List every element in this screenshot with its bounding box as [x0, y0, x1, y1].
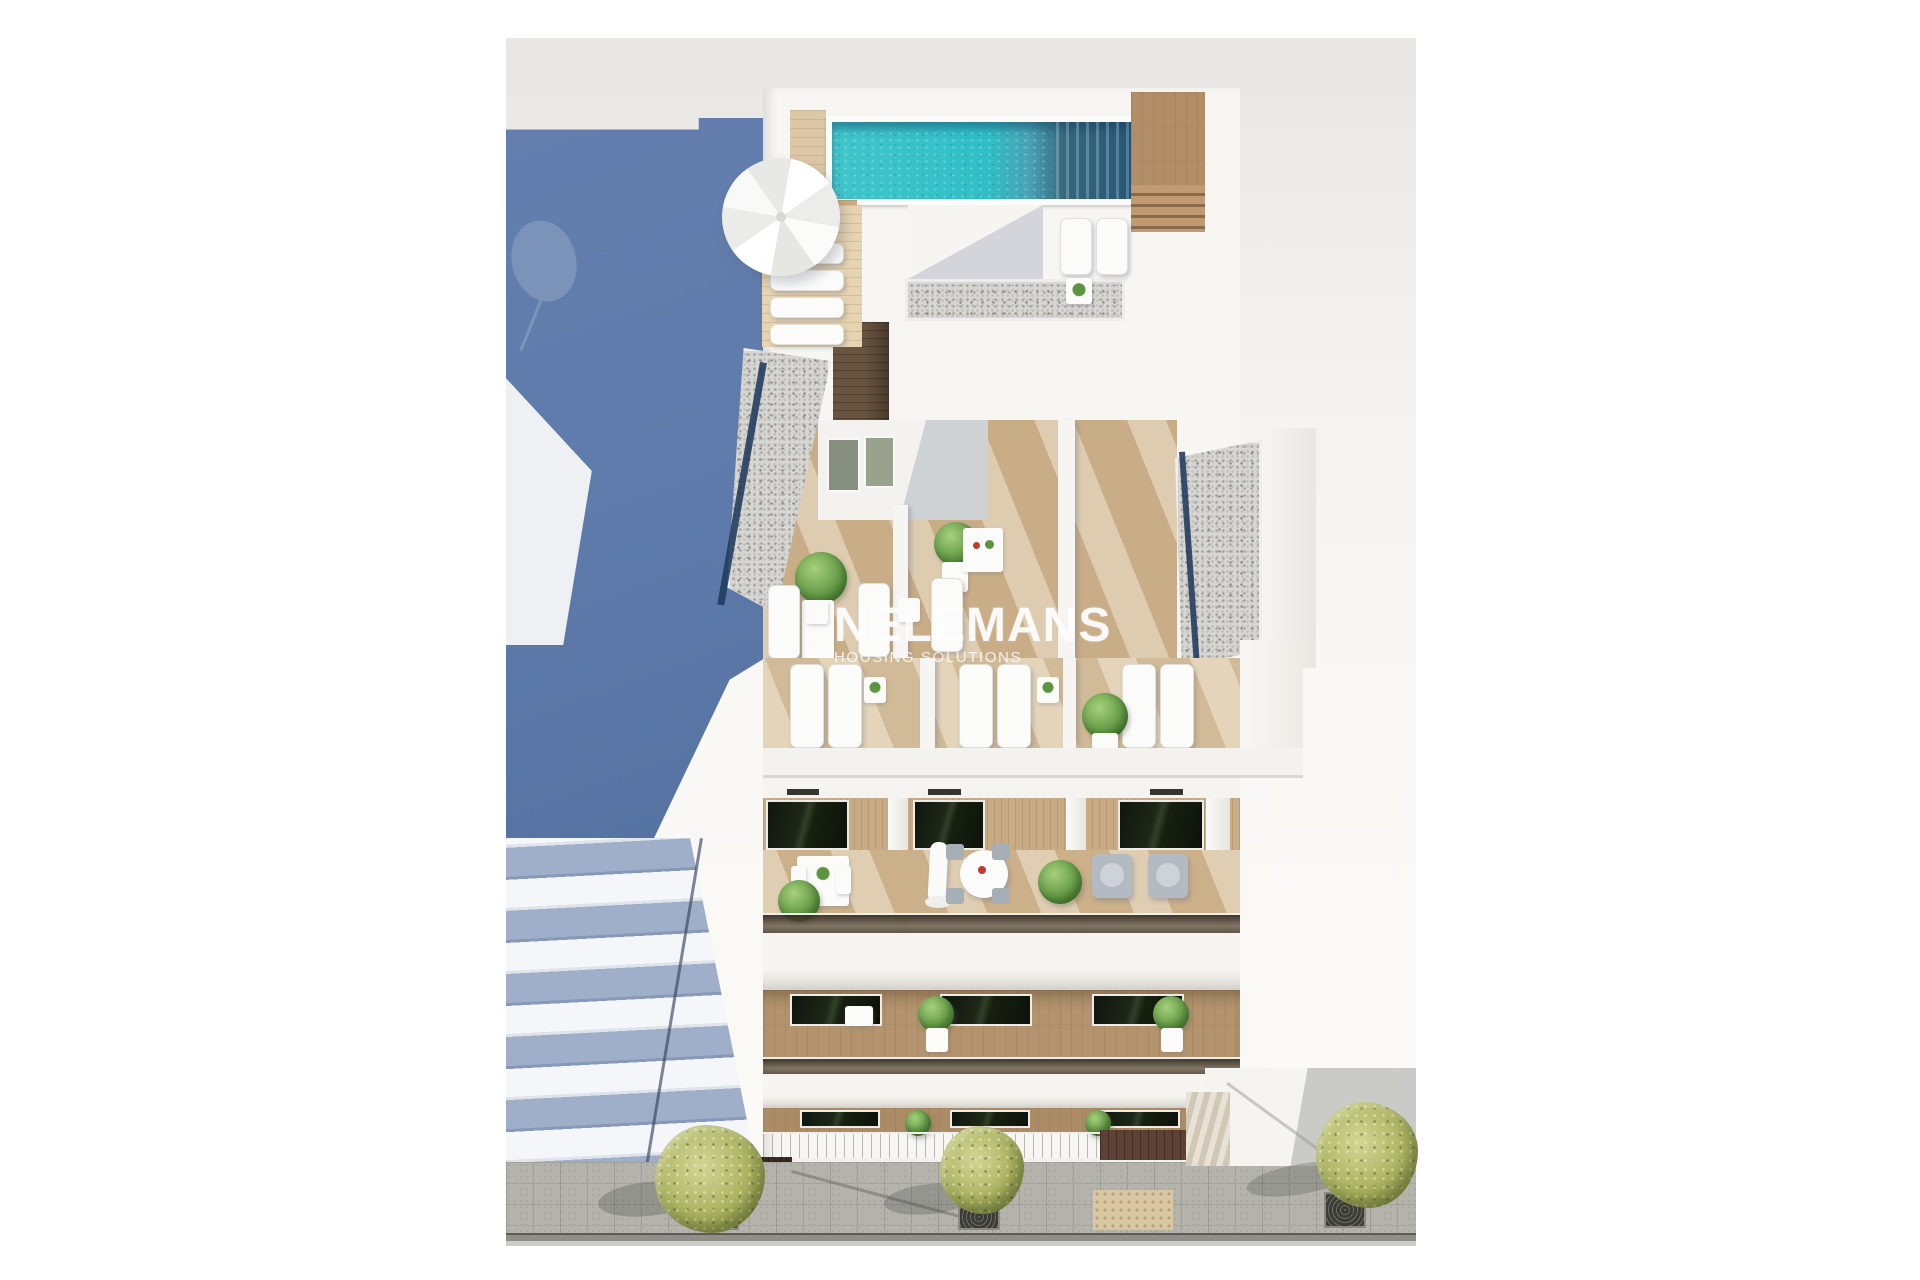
deck-steps — [1131, 185, 1205, 232]
sun-lounger — [1096, 218, 1128, 275]
sliding-door — [766, 800, 849, 850]
curb-strip — [506, 1241, 1416, 1246]
sliding-door — [940, 994, 1032, 1026]
planter-pot — [1092, 733, 1118, 749]
architectural-render-canvas: NELEMANS HOUSING SOLUTIONS — [0, 0, 1920, 1280]
sun-lounger — [790, 664, 824, 748]
tactile-paving — [1093, 1190, 1173, 1230]
planter-bush — [1153, 996, 1189, 1032]
roof-box-shadow — [908, 205, 1043, 279]
table-red-cup — [973, 542, 980, 549]
sun-lounger — [959, 664, 993, 748]
sliding-door — [913, 800, 985, 850]
glass-balustrade — [763, 913, 1240, 935]
roof-box — [908, 205, 1043, 279]
pool-ripples — [832, 130, 1052, 199]
sun-lounger — [770, 324, 844, 345]
table-red-cup — [978, 866, 986, 874]
sun-lounger — [1160, 664, 1194, 748]
partition-wall — [1063, 658, 1076, 748]
elevator-door — [827, 438, 860, 492]
planter-bush — [795, 552, 847, 604]
sliding-door — [800, 1110, 880, 1128]
drain-channel — [506, 1233, 1416, 1241]
corner-wall-right — [1240, 640, 1303, 752]
terrace-table — [963, 528, 1003, 572]
rooftop-pool-water — [832, 122, 1131, 199]
sun-lounger — [828, 664, 862, 748]
armchair-cushion — [1100, 863, 1124, 887]
street-tree — [940, 1126, 1024, 1214]
street-tree — [655, 1125, 765, 1233]
planter-pot — [1161, 1028, 1183, 1052]
sliding-door — [1100, 1110, 1180, 1128]
sliding-door — [1118, 800, 1204, 850]
vent-slot — [1150, 789, 1183, 795]
entrance-steps — [1186, 1092, 1230, 1166]
parasol-icon — [722, 158, 840, 276]
balcony-slab — [763, 933, 1240, 990]
street-tree — [1316, 1102, 1418, 1208]
table-plant — [985, 540, 994, 549]
terrace-stool — [992, 888, 1010, 904]
watermark: NELEMANS HOUSING SOLUTIONS — [834, 604, 1111, 668]
side-table — [806, 600, 828, 624]
vent-slot — [928, 789, 961, 795]
terrace-stool — [946, 888, 964, 904]
balcony-slab — [763, 1074, 1240, 1108]
balcony-table — [845, 1006, 873, 1026]
lounge-armchair — [1092, 854, 1132, 898]
gravel-roof-strip — [905, 279, 1125, 321]
terrace-chair — [836, 866, 851, 894]
pool-wood-deck — [1131, 92, 1205, 232]
parasol-hub — [776, 212, 786, 222]
pool-reflections — [1056, 122, 1131, 199]
terrace-stool — [992, 844, 1010, 860]
sun-lounger — [1122, 664, 1156, 748]
armchair-cushion — [1156, 863, 1180, 887]
watermark-brand: NELEMANS — [834, 604, 1111, 648]
facade-transom-band — [763, 778, 1240, 798]
side-table — [1037, 677, 1059, 703]
sun-lounger — [1060, 218, 1092, 275]
side-wall-right — [1262, 428, 1316, 668]
stair-door — [864, 436, 895, 488]
planter-bush — [918, 996, 954, 1032]
planter-pot — [926, 1028, 948, 1052]
sun-lounger — [770, 297, 844, 318]
side-table — [864, 677, 886, 703]
sliding-door — [950, 1110, 1030, 1128]
planter-bush — [1038, 860, 1082, 904]
partition-wall — [920, 658, 935, 748]
sun-lounger — [768, 585, 800, 659]
sun-lounger — [997, 664, 1031, 748]
terrace-parapet-band — [763, 748, 1303, 778]
lounge-armchair — [1148, 854, 1188, 898]
vent-slot — [787, 789, 819, 795]
groundfloor-band-right — [1100, 1130, 1194, 1160]
terrace-stool — [946, 844, 964, 860]
side-table — [1066, 278, 1092, 304]
